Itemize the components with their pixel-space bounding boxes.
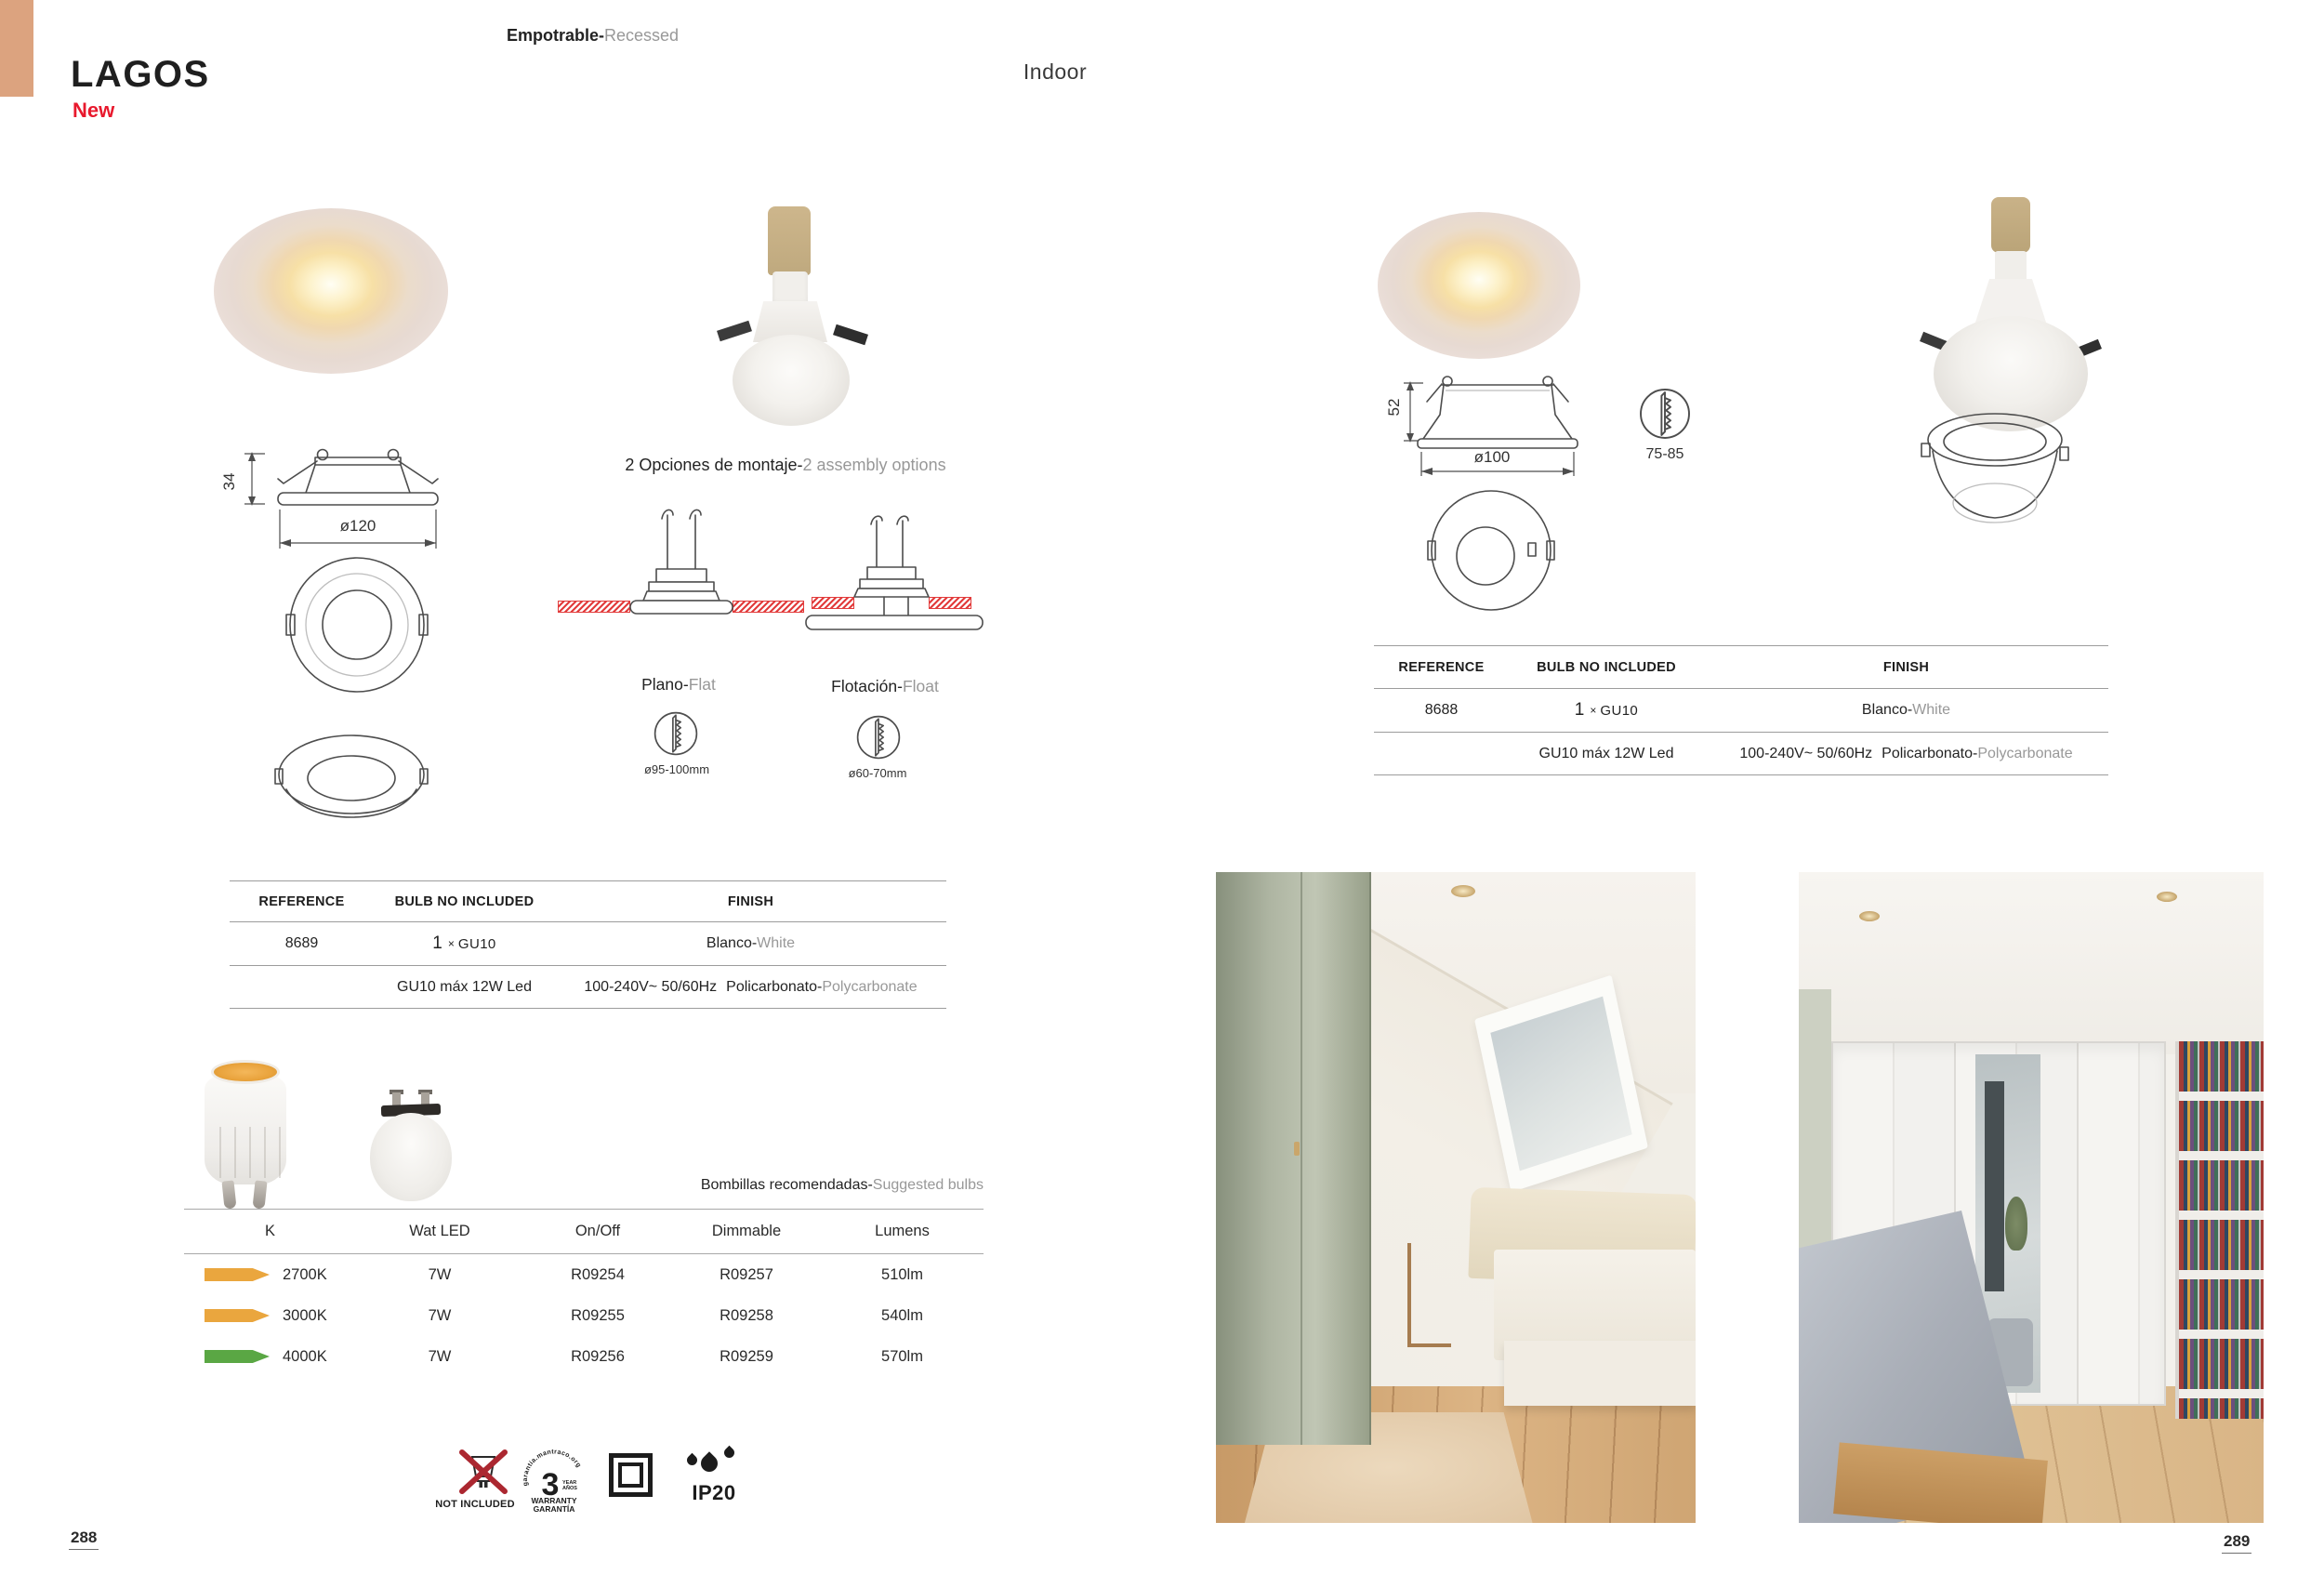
- bulb-qty: 1: [1575, 700, 1585, 721]
- class-ii-inner-square: [618, 1462, 643, 1488]
- material-en: Polycarbonate: [822, 979, 917, 996]
- bulb-not-included-icon: [457, 1449, 509, 1499]
- k-cell: 3000K: [184, 1307, 356, 1325]
- watt-value: 7W: [356, 1266, 523, 1284]
- dimmable-ref: R09258: [672, 1307, 821, 1325]
- option-float-es: Flotación-: [831, 677, 903, 695]
- bulbs-title-en: Suggested bulbs: [873, 1177, 984, 1193]
- warranty-seal-icon: garantia.mantraco.org 3 YEAR AÑOS WARRAN…: [517, 1441, 591, 1515]
- dimmable-ref: R09257: [672, 1266, 821, 1284]
- option-flat-label: Plano-Flat: [595, 675, 762, 695]
- assembly-options-title: 2 Opciones de montaje-2 assembly options: [576, 456, 995, 475]
- wardrobe-green: [1216, 872, 1371, 1445]
- cutout-icon-flat: [653, 710, 699, 757]
- dim-diameter-right: ø100: [1436, 448, 1548, 467]
- dim-height-left: 34: [220, 466, 239, 497]
- ip-rating-label: IP20: [677, 1481, 751, 1505]
- mirror-plant-reflection: [2005, 1197, 2027, 1251]
- dim-diameter-left: ø120: [302, 517, 414, 536]
- ip20-drops-icon: [685, 1447, 743, 1482]
- product-photo-fixture-right: [1924, 197, 2097, 431]
- bulbs-header-dimmable: Dimmable: [672, 1223, 821, 1240]
- bulbs-table: K Wat LED On/Off Dimmable Lumens 2700K 7…: [184, 1209, 984, 1377]
- spec-bulb-spec: GU10 máx 12W Led: [1509, 746, 1704, 762]
- water-drop-small-left: [685, 1453, 700, 1468]
- room-photo-wardrobe-bedroom: [1799, 872, 2264, 1523]
- k-cell: 4000K: [184, 1348, 356, 1366]
- spec-electric-material: 100-240V~ 50/60HzPolicarbonato-Polycarbo…: [1704, 746, 2108, 762]
- bulbs-row-3000k: 3000K 7W R09255 R09258 540lm: [184, 1295, 984, 1336]
- fixture-diffuser-bowl: [733, 335, 850, 426]
- water-drop-large: [697, 1451, 720, 1475]
- voltage: 100-240V~ 50/60Hz: [1739, 746, 1872, 762]
- watt-value: 7W: [356, 1348, 523, 1366]
- bulb-ribs: [206, 1127, 284, 1178]
- material-es: Policarbonato-: [1882, 746, 1977, 762]
- product-photo-glow-right: [1378, 212, 1580, 359]
- spec-table-left-row-2: GU10 máx 12W Led 100-240V~ 50/60HzPolica…: [230, 965, 946, 1009]
- cutout-icon-right: [1638, 387, 1692, 441]
- option-flat-en: Flat: [689, 675, 716, 694]
- bulb-times: ×: [1590, 704, 1596, 717]
- fixture-stem: [768, 206, 811, 275]
- material-en: Polycarbonate: [1977, 746, 2072, 762]
- spec-table-right-row-2: GU10 máx 12W Led 100-240V~ 50/60HzPolica…: [1374, 732, 2108, 775]
- color-temp-arrow: [205, 1268, 270, 1281]
- spec-bulb-value: 1×GU10: [374, 933, 555, 954]
- ceiling: [1799, 872, 2264, 1054]
- k-cell: 2700K: [184, 1266, 356, 1284]
- onoff-ref: R09254: [523, 1266, 672, 1284]
- spec-table-left: REFERENCE BULB NO INCLUDED FINISH 8689 1…: [230, 880, 946, 1009]
- spec-header-reference: REFERENCE: [230, 894, 374, 909]
- option-float-en: Float: [903, 677, 939, 695]
- bulbs-title-es: Bombillas recomendadas-: [701, 1177, 873, 1193]
- spec-table-left-header-row: REFERENCE BULB NO INCLUDED FINISH: [230, 880, 946, 921]
- k-value: 3000K: [283, 1307, 327, 1325]
- category-en: Recessed: [604, 26, 679, 45]
- spec-bulb-spec: GU10 máx 12W Led: [374, 979, 555, 996]
- lumens-value: 510lm: [821, 1266, 984, 1284]
- class-ii-icon: [609, 1453, 653, 1497]
- spec-finish-value: Blanco-White: [555, 935, 946, 952]
- cutout-size-right: 75-85: [1630, 446, 1700, 463]
- warranty-anios: AÑOS: [562, 1485, 577, 1491]
- color-temp-arrow: [205, 1350, 270, 1363]
- material-es: Policarbonato-: [726, 979, 822, 996]
- spec-finish-value: Blanco-White: [1704, 702, 2108, 719]
- spec-reference-value: 8688: [1374, 702, 1509, 719]
- bulb-type: GU10: [458, 936, 496, 952]
- fixture-spring-clip-right: [833, 324, 868, 346]
- bulbs-title: Bombillas recomendadas-Suggested bulbs: [519, 1177, 984, 1194]
- page-number-left: 288: [69, 1528, 99, 1550]
- spec-header-bulb: BULB NO INCLUDED: [374, 894, 555, 909]
- catalog-spread: LAGOS New Empotrable-Recessed Indoor 34 …: [0, 0, 2324, 1588]
- bulb-qty: 1: [432, 933, 442, 954]
- finish-en: White: [757, 935, 795, 952]
- mirror-curtain-reflection: [1985, 1081, 2004, 1291]
- onoff-ref: R09255: [523, 1307, 672, 1325]
- spec-header-bulb: BULB NO INCLUDED: [1509, 660, 1704, 675]
- dimmable-ref: R09259: [672, 1348, 821, 1366]
- product-photo-fixture-left: [716, 206, 869, 430]
- lumens-value: 570lm: [821, 1348, 984, 1366]
- assembly-title-es: 2 Opciones de montaje-: [625, 456, 802, 474]
- bulb-photo-base: [370, 1092, 456, 1204]
- wardrobe-door-seam: [1301, 872, 1302, 1445]
- spec-table-left-row-1: 8689 1×GU10 Blanco-White: [230, 921, 946, 965]
- profile-drawing-left: [237, 444, 451, 562]
- finish-es: Blanco-: [706, 935, 757, 952]
- corner-accent-block: [0, 0, 33, 97]
- perspective-drawing-right: [1912, 406, 2078, 538]
- bulbs-row-4000k: 4000K 7W R09256 R09259 570lm: [184, 1336, 984, 1377]
- bulb-pin-right: [252, 1180, 267, 1209]
- bulbs-row-2700k: 2700K 7W R09254 R09257 510lm: [184, 1254, 984, 1295]
- recessed-spot-2: [2157, 892, 2177, 902]
- mount-drawing-float: [795, 511, 995, 651]
- bulb-lens: [211, 1060, 280, 1084]
- bulb-type: GU10: [1600, 703, 1638, 719]
- spec-bulb-value: 1×GU10: [1509, 700, 1704, 721]
- spec-header-reference: REFERENCE: [1374, 660, 1509, 675]
- bulbs-header-k: K: [184, 1223, 356, 1240]
- cutout-size-float: ø60-70mm: [822, 766, 933, 780]
- room-photo-attic-bedroom: [1216, 872, 1696, 1523]
- page-number-right: 289: [2222, 1532, 2251, 1554]
- option-float-label: Flotación-Float: [792, 677, 978, 696]
- spec-table-right: REFERENCE BULB NO INCLUDED FINISH 8688 1…: [1374, 645, 2108, 775]
- bulbs-header-lumens: Lumens: [821, 1223, 984, 1240]
- finish-en: White: [1912, 702, 1950, 719]
- recessed-spot-1: [1451, 885, 1475, 897]
- onoff-ref: R09256: [523, 1348, 672, 1366]
- fixture-collar: [1995, 251, 2027, 283]
- product-photo-glow-left: [214, 208, 448, 374]
- bulbs-header-watt: Wat LED: [356, 1223, 523, 1240]
- fixture-stem: [1991, 197, 2030, 253]
- bulb-pin-left: [221, 1180, 236, 1209]
- recessed-spot-1: [1859, 911, 1880, 921]
- lumens-value: 540lm: [821, 1307, 984, 1325]
- bulbs-header-row: K Wat LED On/Off Dimmable Lumens: [184, 1209, 984, 1254]
- spec-header-finish: FINISH: [555, 894, 946, 909]
- water-drop-small-right: [722, 1446, 737, 1461]
- wardrobe-handle: [1294, 1142, 1300, 1156]
- k-value: 4000K: [283, 1348, 327, 1366]
- k-value: 2700K: [283, 1266, 327, 1284]
- cutout-icon-float: [855, 714, 902, 761]
- spec-electric-material: 100-240V~ 50/60HzPolicarbonato-Polycarbo…: [555, 979, 946, 996]
- finish-es: Blanco-: [1862, 702, 1912, 719]
- spec-reference-value: 8689: [230, 935, 374, 952]
- assembly-title-en: 2 assembly options: [803, 456, 946, 474]
- skylight-glass: [1490, 997, 1631, 1171]
- bookshelf: [2175, 1041, 2264, 1419]
- bulb2-body: [370, 1113, 452, 1201]
- watt-value: 7W: [356, 1307, 523, 1325]
- location-heading: Indoor: [985, 60, 1125, 85]
- page-title: LAGOS: [71, 54, 210, 96]
- color-temp-arrow: [205, 1309, 270, 1322]
- topview-drawing-left: [286, 554, 428, 695]
- bulb-times: ×: [448, 937, 455, 950]
- bed-base: [1504, 1341, 1696, 1406]
- mount-drawing-flat: [558, 502, 804, 623]
- option-flat-es: Plano-: [641, 675, 689, 694]
- cutout-size-flat: ø95-100mm: [621, 762, 733, 776]
- wooden-chair: [1407, 1243, 1450, 1347]
- dim-height-right: 52: [1385, 391, 1404, 423]
- category-heading: Empotrable-Recessed: [507, 26, 679, 46]
- spec-table-right-row-1: 8688 1×GU10 Blanco-White: [1374, 688, 2108, 732]
- warranty-line2: GARANTÍA: [534, 1504, 575, 1514]
- not-included-label: NOT INCLUDED: [419, 1499, 531, 1510]
- spec-table-right-header-row: REFERENCE BULB NO INCLUDED FINISH: [1374, 645, 2108, 688]
- perspective-drawing-left: [275, 730, 428, 834]
- topview-drawing-right: [1428, 487, 1554, 614]
- fixture-spring-clip-left: [717, 321, 752, 342]
- category-es: Empotrable-: [507, 26, 604, 45]
- spec-header-finish: FINISH: [1704, 660, 2108, 675]
- bulbs-header-onoff: On/Off: [523, 1223, 672, 1240]
- new-badge: New: [73, 99, 114, 123]
- profile-drawing-right: [1399, 372, 1599, 483]
- voltage: 100-240V~ 50/60Hz: [584, 979, 717, 996]
- bulb-photo-side: [197, 1060, 295, 1218]
